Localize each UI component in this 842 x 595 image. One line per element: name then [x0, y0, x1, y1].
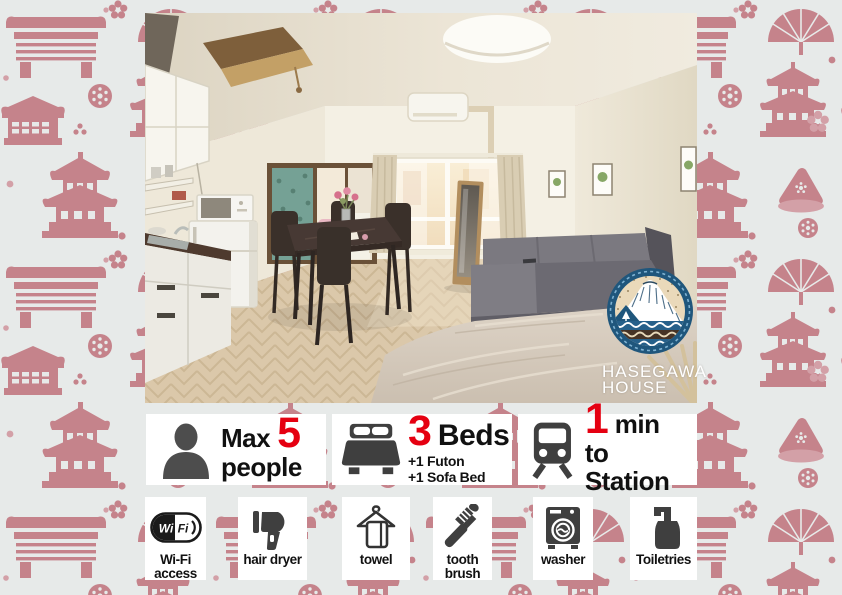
person-icon [159, 421, 213, 479]
towel-icon [354, 504, 398, 550]
svg-text:Fi: Fi [177, 521, 188, 535]
station-line2: to Station [585, 439, 697, 495]
beds-badge: 3Beds +1 Futon +1 Sofa Bed [332, 414, 512, 485]
washer-icon [541, 505, 585, 550]
amenity-toiletries: Toiletries [630, 497, 697, 580]
capacity-prefix: Max [221, 423, 270, 453]
wifi-icon: Wi Fi [150, 512, 202, 543]
train-icon [528, 421, 577, 479]
logo-wordmark: HASEGAWA HOUSE [602, 364, 707, 396]
logo-line2: HOUSE [602, 380, 707, 396]
toothbrush-icon [440, 504, 486, 550]
beds-number: 3 [408, 414, 431, 448]
capacity-badge: Max5 people [146, 414, 326, 485]
toiletries-icon [642, 504, 686, 550]
microwave [197, 195, 253, 221]
amenity-towel: tooth towel [342, 497, 410, 580]
amenity-hair-dryer: hair dryer [238, 497, 307, 580]
amenity-washer: washer [533, 497, 593, 580]
capacity-number: 5 [277, 418, 300, 448]
capacity-unit: people [221, 453, 302, 481]
beds-extra1: +1 Futon [408, 453, 509, 469]
amenity-toothbrush: tooth brush [433, 497, 492, 580]
ceiling-light [443, 15, 551, 63]
hasegawa-house-logo [606, 267, 694, 355]
beds-extra2: +1 Sofa Bed [408, 469, 509, 485]
hair-dryer-icon [250, 504, 296, 550]
station-unit: min [615, 409, 660, 439]
station-badge: 1min to Station [518, 414, 697, 485]
bed-icon [340, 422, 402, 478]
station-number: 1 [585, 404, 608, 434]
beds-unit: Beds [438, 419, 509, 453]
amenity-wifi: Wi Fi Wi-Fi access [145, 497, 206, 580]
svg-text:Wi: Wi [158, 521, 173, 535]
air-conditioner [408, 93, 468, 121]
